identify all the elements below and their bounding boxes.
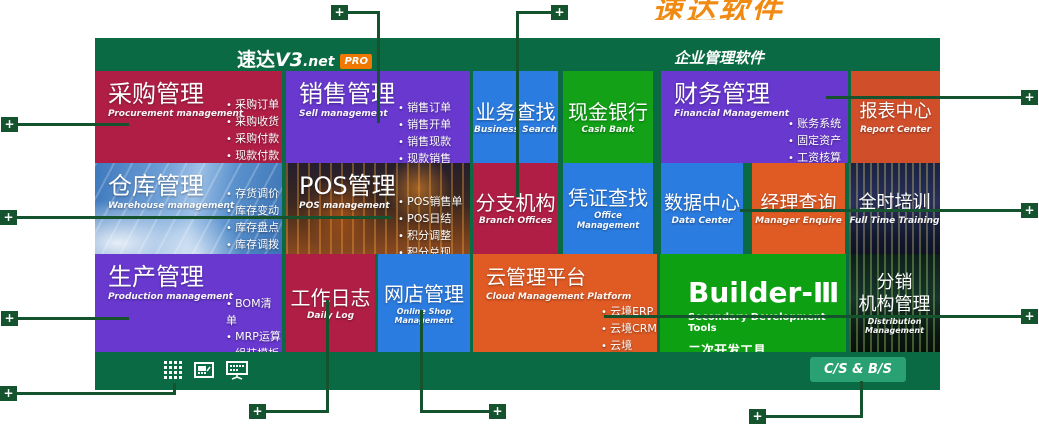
- tile-subtitle: Manager Enquire: [755, 216, 842, 226]
- tile-subtitle: Distribution Management: [849, 317, 940, 335]
- tile-bullet: MRP运算: [226, 329, 282, 346]
- callout-plus-footer-icons[interactable]: +: [0, 386, 17, 401]
- tile-title: 工作日志: [291, 286, 371, 310]
- tile-title: 凭证查找: [568, 186, 648, 210]
- header-right-title: 企业管理软件: [674, 47, 764, 68]
- tile-title: 报表中心: [860, 100, 932, 124]
- callout-line-distribution: [604, 315, 1022, 318]
- tile-bullet: 账务系统: [788, 116, 841, 133]
- tile-title: 数据中心: [664, 191, 740, 215]
- callout-line-training: [740, 209, 1022, 212]
- tile-cloud-platform[interactable]: 云管理平台 Cloud Management Platform 云境ERP 云境…: [473, 254, 657, 352]
- tile-title-line2: 机构管理: [859, 294, 931, 316]
- callout-plus-daily-log[interactable]: +: [249, 404, 266, 419]
- tile-title-line1: 分销: [877, 272, 913, 294]
- footer-icon-bar: [164, 361, 249, 380]
- tile-title: Builder-Ⅲ: [688, 278, 846, 308]
- callout-line-daily-log-h: [265, 410, 328, 413]
- tile-daily-log[interactable]: 工作日志 Daily Log: [286, 254, 375, 352]
- network-monitor-icon[interactable]: [225, 361, 249, 380]
- tile-title: 云管理平台: [486, 263, 644, 291]
- top-banner: 速达软件: [652, 0, 862, 20]
- tile-bullet: 库存盘点: [226, 220, 279, 237]
- tile-subtitle: Cash Bank: [582, 125, 635, 135]
- tile-subtitle: Office Management: [563, 211, 653, 231]
- tile-bullet: POS日结: [398, 211, 462, 228]
- tile-bullet: 云境ERP: [601, 304, 657, 321]
- callout-line-branch-h: [516, 11, 552, 14]
- callout-plus-warehouse[interactable]: +: [0, 210, 17, 225]
- tile-subtitle: Branch Offices: [479, 216, 552, 226]
- tile-subtitle: Full Time Training: [850, 216, 940, 226]
- callout-plus-finance[interactable]: +: [1021, 90, 1038, 105]
- callout-line-procurement: [17, 123, 129, 126]
- tile-procurement[interactable]: 采购管理 Procurement management 采购订单 采购收货 采购…: [95, 71, 282, 163]
- tile-subtitle: Daily Log: [307, 311, 354, 321]
- tile-bullet: 积分调整: [398, 228, 462, 245]
- tile-bullet: 采购收货: [226, 114, 279, 131]
- callout-plus-training[interactable]: +: [1021, 203, 1038, 218]
- tile-online-shop[interactable]: 网店管理 Online Shop Management: [378, 254, 470, 352]
- tile-bullet: 采购付款: [226, 131, 279, 148]
- cs-bs-badge[interactable]: C/S & B/S: [810, 357, 906, 382]
- tile-bullet: 工资核算: [788, 150, 841, 163]
- callout-line-footer-icons-h: [13, 392, 176, 395]
- logo-suffix: .net: [303, 54, 334, 70]
- tile-bullet: 现款销售: [398, 151, 451, 163]
- callout-line-branch-v: [516, 11, 519, 197]
- callout-line-daily-log-v: [326, 300, 329, 413]
- callout-plus-procurement[interactable]: +: [1, 117, 18, 132]
- tile-title: 现金银行: [568, 100, 648, 124]
- tile-bullet: 销售现款: [398, 134, 451, 151]
- tile-bullet: 采购订单: [226, 97, 279, 114]
- tile-bullet: 云境SOHO: [601, 338, 657, 352]
- tile-bullet: 积分兑现: [398, 245, 462, 254]
- screen: 速达软件 速达V3.netPRO 企业管理软件 采购管理 Procurement…: [0, 0, 1039, 447]
- callout-plus-distribution[interactable]: +: [1021, 309, 1038, 324]
- callout-plus-production[interactable]: +: [1, 311, 18, 326]
- pro-badge: PRO: [340, 54, 372, 69]
- tile-cash-bank[interactable]: 现金银行 Cash Bank: [563, 71, 653, 163]
- tile-data-center[interactable]: 数据中心 Data Center: [661, 163, 743, 254]
- modules-grid-icon[interactable]: [164, 361, 183, 380]
- tile-bullet: 云境CRM: [601, 321, 657, 338]
- callout-line-sales-v: [377, 11, 380, 123]
- tile-subtitle: Report Center: [860, 125, 931, 135]
- callout-line-sales-h: [347, 11, 380, 14]
- tile-bullet: 组装模板: [226, 346, 282, 352]
- callout-line-cs-bs-v: [860, 381, 863, 418]
- callout-plus-online-shop[interactable]: +: [489, 404, 506, 419]
- callout-plus-cs-bs[interactable]: +: [749, 409, 766, 424]
- tile-bullet: 销售开单: [398, 117, 451, 134]
- app-logo: 速达V3.netPRO: [237, 45, 372, 72]
- logo-version: V3: [275, 49, 303, 71]
- tile-bullet: POS销售单: [398, 194, 462, 211]
- callout-plus-sales[interactable]: +: [331, 5, 348, 20]
- tile-subtitle: Online Shop Management: [378, 307, 470, 325]
- tile-subtitle: Cloud Management Platform: [486, 292, 644, 302]
- callout-plus-branch[interactable]: +: [551, 5, 568, 20]
- tile-bullet: 库存调拨: [226, 237, 279, 254]
- tile-bullet: 固定资产: [788, 133, 841, 150]
- tile-bullet: 存货调价: [226, 186, 279, 203]
- tile-bullet: 销售订单: [398, 100, 451, 117]
- callout-line-cs-bs-h: [765, 415, 862, 418]
- tile-builder[interactable]: Builder-Ⅲ Secondary Development Tools 二次…: [660, 254, 846, 352]
- tile-voucher-search[interactable]: 凭证查找 Office Management: [563, 163, 653, 254]
- callout-line-footer-icons-v: [173, 383, 176, 393]
- tile-title: 网店管理: [384, 282, 464, 306]
- callout-line-finance: [826, 96, 1022, 99]
- tile-bullet: 现款付款: [226, 148, 279, 163]
- tile-title: 财务管理: [674, 80, 835, 108]
- tile-pos[interactable]: POS管理 POS management POS销售单 POS日结 积分调整 积…: [286, 163, 470, 254]
- callout-line-online-shop-v: [420, 310, 423, 413]
- tile-production[interactable]: 生产管理 Production management BOM清单 MRP运算 组…: [95, 254, 282, 352]
- top-banner-text: 速达软件: [652, 0, 862, 20]
- tile-bullet: BOM清单: [226, 296, 282, 329]
- tile-title: 生产管理: [108, 263, 269, 291]
- tile-subtitle-cn: 二次开发工具: [688, 340, 846, 352]
- logo-cn: 速达: [237, 49, 275, 71]
- tile-report-center[interactable]: 报表中心 Report Center: [851, 71, 940, 163]
- tile-warehouse[interactable]: 仓库管理 Warehouse management 存货调价 库存变动 库存盘点…: [95, 163, 282, 254]
- tile-finance[interactable]: 财务管理 Financial Management 账务系统 固定资产 工资核算: [661, 71, 848, 163]
- tile-distribution[interactable]: 分销 机构管理 Distribution Management: [849, 254, 940, 352]
- callout-line-online-shop-h: [420, 410, 491, 413]
- callout-line-warehouse: [13, 216, 391, 219]
- callout-line-production: [17, 317, 129, 320]
- screen-chart-icon[interactable]: [194, 362, 214, 380]
- tile-subtitle: Data Center: [671, 216, 732, 226]
